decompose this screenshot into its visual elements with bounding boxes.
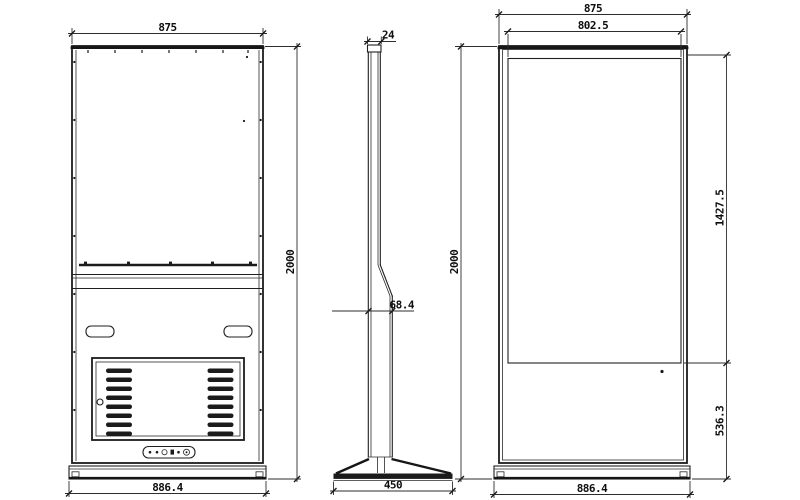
- front-base-plinth: [494, 466, 690, 479]
- kiosk-three-view-drawing: 875 2000 886.4: [0, 0, 800, 500]
- ir-sensor-dot: [660, 370, 663, 373]
- dimension-front-screen-width: 802.5: [504, 19, 685, 57]
- base-foot-notch: [72, 472, 79, 477]
- dim-label-side-mid-depth: 68.4: [390, 299, 415, 312]
- control-button-panel: [143, 447, 195, 459]
- side-view: 24 68.4 450: [330, 29, 456, 496]
- control-button: [149, 451, 152, 454]
- dim-label-rear-base-width: 886.4: [152, 481, 183, 494]
- dimension-front-screen-height: 1427.5: [684, 52, 731, 366]
- dim-label-front-top-width: 875: [584, 2, 602, 15]
- louver-vents-right-column: [208, 369, 234, 437]
- louver-vents-left-column: [106, 369, 132, 437]
- rear-cabinet-outline: [72, 46, 263, 463]
- side-base-foot: [334, 457, 453, 481]
- base-foot-notch: [680, 472, 687, 477]
- dim-label-rear-top-width: 875: [158, 21, 176, 34]
- dim-label-rear-height: 2000: [284, 250, 297, 275]
- top-screw-ticks: [88, 50, 248, 53]
- control-button: [162, 450, 167, 455]
- control-button: [186, 451, 188, 453]
- dim-label-front-screen-width: 802.5: [578, 19, 609, 32]
- rear-base-plinth: [69, 466, 266, 479]
- dimension-rear-height: 2000: [265, 43, 301, 482]
- dimension-side-top-depth: 24: [364, 29, 396, 45]
- control-button: [177, 451, 180, 454]
- front-view: 875 802.5 2000 1427.5: [448, 2, 731, 498]
- base-foot-notch: [497, 472, 504, 477]
- dim-label-front-height: 2000: [448, 250, 461, 275]
- front-cabinet-outline: [499, 46, 687, 463]
- technical-drawing-canvas: 875 2000 886.4: [0, 0, 800, 500]
- control-button: [156, 451, 159, 454]
- mounting-rail: [79, 262, 257, 265]
- dimension-rear-top-width: 875: [68, 21, 267, 44]
- dimension-front-height: 2000: [448, 43, 497, 482]
- side-top-cap: [368, 45, 382, 52]
- panel-lock: [97, 399, 103, 405]
- dimension-rear-base-width: 886.4: [65, 481, 270, 497]
- dimension-front-base-width: 886.4: [490, 481, 694, 498]
- side-taper-edge: [380, 265, 392, 296]
- base-foot-notch: [256, 472, 263, 477]
- dimension-front-lower-height: 536.3: [692, 363, 731, 482]
- dim-label-front-screen-height: 1427.5: [714, 190, 727, 227]
- right-handle-slot: [224, 326, 252, 337]
- dim-label-front-base-width: 886.4: [577, 482, 608, 495]
- front-cabinet-inner-line: [503, 50, 684, 461]
- front-screen-outline: [508, 59, 681, 364]
- control-button: [171, 450, 175, 455]
- dim-label-front-lower-height: 536.3: [714, 406, 727, 437]
- left-handle-slot: [86, 326, 114, 337]
- dim-label-side-base-depth: 450: [384, 479, 402, 492]
- dimension-side-mid-depth: 68.4: [332, 299, 415, 315]
- dim-label-side-top-depth: 24: [382, 29, 395, 42]
- rear-view: 875 2000 886.4: [65, 21, 301, 497]
- side-taper-inner: [378, 265, 390, 296]
